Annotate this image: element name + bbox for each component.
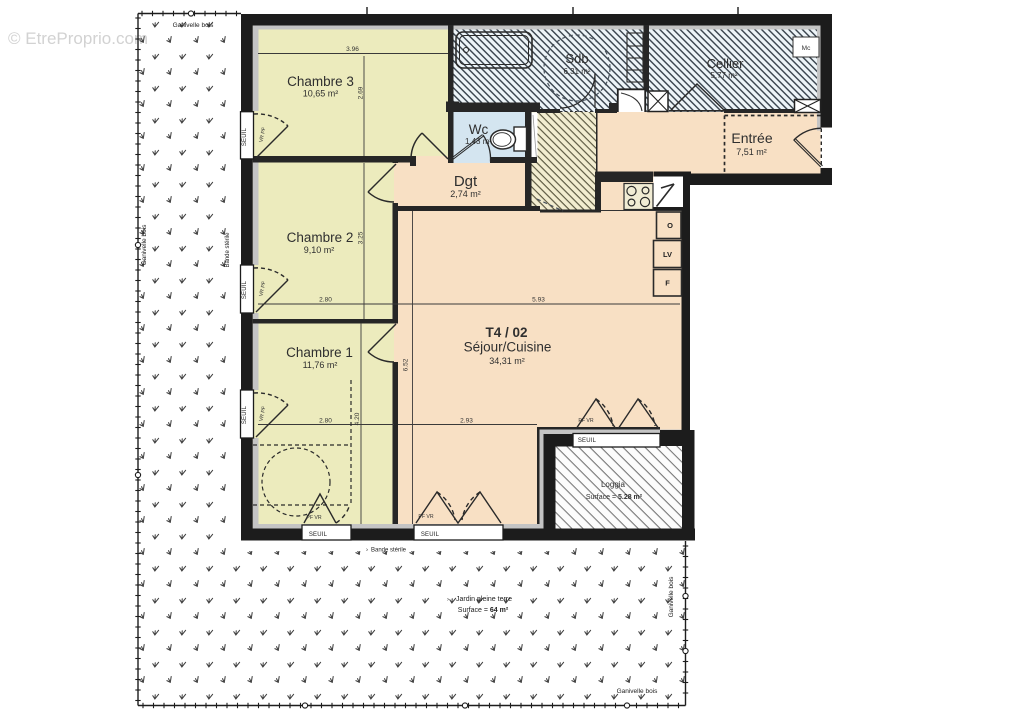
svg-text:3.96: 3.96 <box>346 46 359 53</box>
svg-text:T4 / 02: T4 / 02 <box>485 325 527 340</box>
svg-text:SEUIL: SEUIL <box>242 280 248 299</box>
svg-text:Ganivelle bois: Ganivelle bois <box>668 576 675 618</box>
svg-text:11,76 m²: 11,76 m² <box>303 360 338 370</box>
svg-text:Jardin pleine terre: Jardin pleine terre <box>456 596 512 603</box>
svg-text:6,31 m²: 6,31 m² <box>563 67 590 76</box>
svg-text:2.80: 2.80 <box>319 418 332 425</box>
svg-text:F: F <box>665 279 670 288</box>
svg-text:Bande stérile: Bande stérile <box>225 232 231 268</box>
svg-text:SEUIL: SEUIL <box>421 532 440 538</box>
svg-text:9,10 m²: 9,10 m² <box>304 245 335 255</box>
svg-text:Cellier: Cellier <box>707 56 745 71</box>
svg-text:Chambre 3: Chambre 3 <box>287 74 354 89</box>
svg-text:SEUIL: SEUIL <box>242 405 248 424</box>
svg-text:Ganivelle bois: Ganivelle bois <box>617 688 659 695</box>
svg-text:LV: LV <box>663 250 672 259</box>
svg-text:›: › <box>366 548 368 554</box>
svg-text:2,74 m²: 2,74 m² <box>450 189 481 199</box>
svg-text:2.80: 2.80 <box>319 297 332 304</box>
svg-text:›: › <box>447 597 449 603</box>
svg-text:Surface = 5.28 m²: Surface = 5.28 m² <box>586 494 643 501</box>
svg-text:SEUIL: SEUIL <box>578 438 597 444</box>
svg-text:Wc: Wc <box>469 122 489 137</box>
svg-text:O: O <box>667 221 673 230</box>
svg-text:4.20: 4.20 <box>354 412 361 425</box>
svg-text:SEUIL: SEUIL <box>242 127 248 146</box>
svg-text:Entrée: Entrée <box>731 130 772 146</box>
svg-text:Chambre 2: Chambre 2 <box>287 230 354 245</box>
svg-text:Séjour/Cuisine: Séjour/Cuisine <box>464 340 552 355</box>
svg-text:10,65 m²: 10,65 m² <box>303 89 339 99</box>
svg-text:Chambre 1: Chambre 1 <box>286 345 353 360</box>
svg-text:Bande stérile: Bande stérile <box>371 548 407 554</box>
svg-text:Surface = 64 m²: Surface = 64 m² <box>458 607 509 614</box>
svg-text:Dgt: Dgt <box>454 173 478 190</box>
svg-text:Sdb: Sdb <box>565 51 588 66</box>
svg-text:Ganivelle bois: Ganivelle bois <box>141 224 148 266</box>
svg-text:© EtreProprio.com: © EtreProprio.com <box>8 29 148 48</box>
svg-text:3.25: 3.25 <box>358 231 365 244</box>
svg-text:Loggia: Loggia <box>601 480 626 489</box>
svg-text:2.93: 2.93 <box>460 418 473 425</box>
svg-text:5,77 m²: 5,77 m² <box>710 71 737 80</box>
svg-text:Mc: Mc <box>802 45 811 52</box>
svg-text:34,31 m²: 34,31 m² <box>489 356 525 366</box>
svg-text:Ganivelle bois: Ganivelle bois <box>173 22 215 29</box>
svg-text:SEUIL: SEUIL <box>309 532 328 538</box>
svg-text:6.52: 6.52 <box>403 358 410 371</box>
svg-text:2.69: 2.69 <box>358 86 365 99</box>
svg-text:7,51 m²: 7,51 m² <box>736 147 767 157</box>
svg-text:5.93: 5.93 <box>532 297 545 304</box>
